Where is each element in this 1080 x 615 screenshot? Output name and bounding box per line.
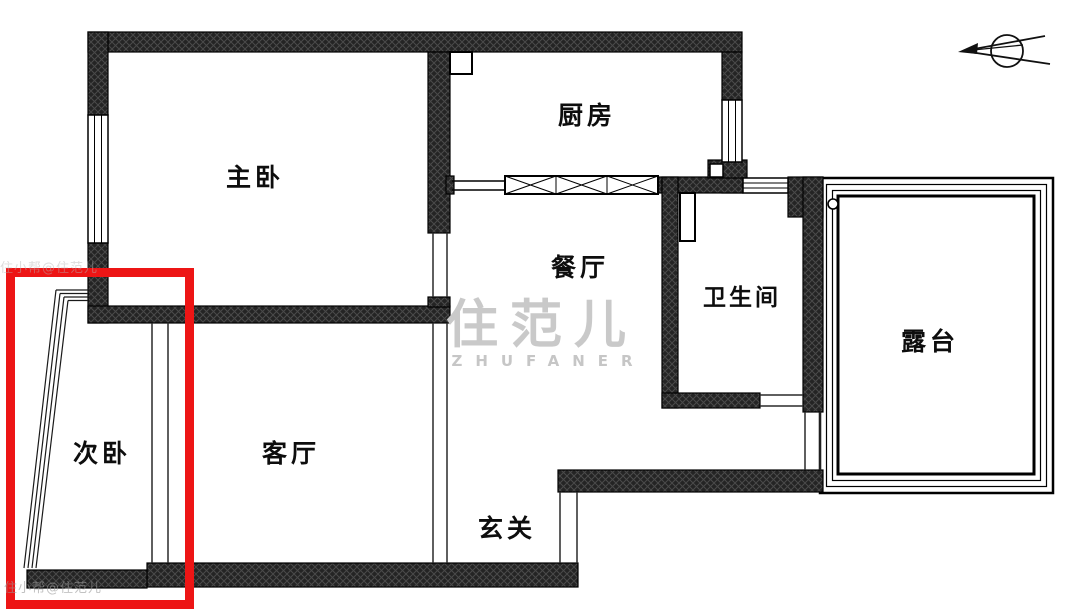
bathroom-duct-notch xyxy=(680,193,695,241)
room-label-living-room: 客厅 xyxy=(258,434,320,470)
watermark-corner-bottom: 住小帮@住范儿 xyxy=(4,577,102,596)
room-label-master-bedroom: 主卧 xyxy=(222,158,284,194)
room-label-second-bedroom: 次卧 xyxy=(69,434,131,470)
entry-door-opening xyxy=(560,492,577,563)
watermark-corner-left: 住小帮@住范儿 xyxy=(0,257,98,276)
bathroom-door-opening xyxy=(760,395,803,406)
bathroom-side-window xyxy=(743,178,788,193)
compass-arrow-tip xyxy=(958,43,978,54)
watermark-brand: ZHUFANER xyxy=(438,352,645,370)
wall-top xyxy=(88,32,742,52)
wall-master-right xyxy=(428,52,450,233)
master-bedroom-window xyxy=(88,115,108,243)
terrace-door-opening xyxy=(805,412,820,470)
bedroom2-living-opening xyxy=(152,323,168,563)
wall-living-bottom xyxy=(147,563,578,587)
compass-icon xyxy=(958,35,1050,67)
wall-left-upper xyxy=(88,32,108,115)
room-label-entryway: 玄关 xyxy=(474,509,536,545)
kitchen-corner-notch xyxy=(450,52,472,74)
wall-kitchen-right-upper xyxy=(722,52,742,100)
wall-bathroom-right xyxy=(803,177,823,412)
watermark-logo: 住范儿 xyxy=(434,283,638,358)
room-label-terrace: 露台 xyxy=(897,322,959,358)
kitchen-window xyxy=(722,100,742,162)
room-label-dining-room: 餐厅 xyxy=(547,248,609,284)
wall-master-bottom xyxy=(88,306,450,323)
room-label-bathroom: 卫生间 xyxy=(699,278,781,312)
bay-window xyxy=(24,290,88,568)
wall-track-bump xyxy=(446,176,454,194)
wall-bathroom-left xyxy=(662,177,678,408)
sliding-door xyxy=(452,176,658,194)
room-label-kitchen: 厨房 xyxy=(554,96,616,132)
wall-bathroom-bottom xyxy=(662,393,760,408)
door-hinge-dot xyxy=(828,199,838,209)
wall-entry-south xyxy=(558,470,823,492)
wall-notches xyxy=(450,52,723,241)
floor-plan-canvas: 主卧 厨房 餐厅 卫生间 露台 次卧 客厅 玄关 住范儿 ZHUFANER 住小… xyxy=(0,0,1080,615)
sliding-door-track xyxy=(452,181,505,190)
kitchen-duct-notch xyxy=(710,164,723,177)
